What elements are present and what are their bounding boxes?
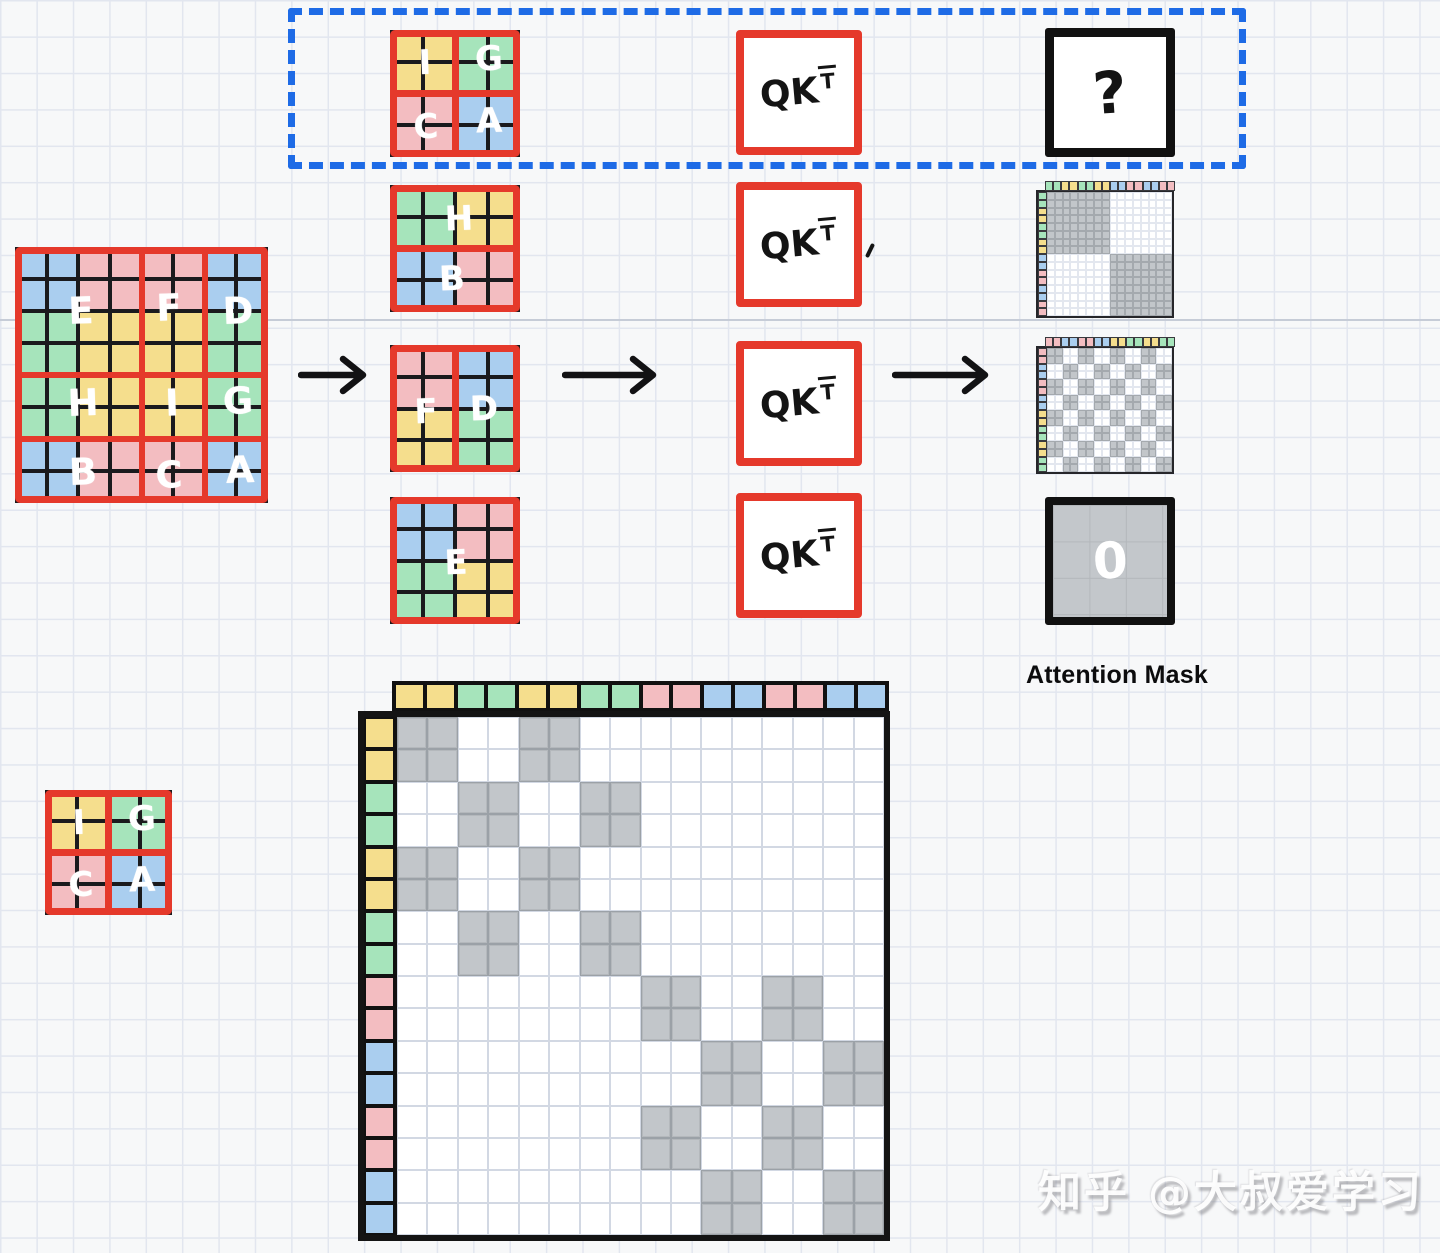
mask-cell bbox=[1086, 457, 1094, 465]
mask-cell bbox=[1078, 418, 1086, 426]
mask-cell bbox=[1141, 364, 1149, 372]
mask-query-strip bbox=[1038, 348, 1047, 472]
mask-cell bbox=[458, 749, 488, 781]
mask-cell bbox=[1047, 254, 1055, 262]
strip-cell bbox=[1038, 418, 1047, 426]
mask-cell bbox=[1149, 277, 1157, 285]
mask-cell bbox=[1164, 371, 1172, 379]
mask-cell bbox=[1141, 457, 1149, 465]
mask-cell bbox=[1156, 246, 1164, 254]
mask-cell bbox=[1063, 356, 1071, 364]
mask-cell bbox=[488, 1203, 518, 1235]
mask-cell bbox=[854, 1203, 884, 1235]
mask-cell bbox=[1110, 262, 1118, 270]
mask-cell bbox=[1094, 270, 1102, 278]
mask-cell bbox=[1063, 246, 1071, 254]
mask-cell bbox=[823, 1170, 853, 1202]
mask-cell bbox=[671, 944, 701, 976]
mask-cell bbox=[1063, 192, 1071, 200]
mask-cell bbox=[580, 976, 610, 1008]
mask-cell bbox=[458, 911, 488, 943]
mask-cell bbox=[762, 944, 792, 976]
mask-cell bbox=[1063, 239, 1071, 247]
mask-cell bbox=[1070, 379, 1078, 387]
mask-cell bbox=[1117, 277, 1125, 285]
mask-cell bbox=[1141, 192, 1149, 200]
mask-cell bbox=[793, 814, 823, 846]
mask-cell bbox=[1086, 418, 1094, 426]
mask-cell bbox=[1110, 449, 1118, 457]
mask-cell bbox=[1063, 402, 1071, 410]
mask-cell bbox=[1110, 371, 1118, 379]
mask-cell bbox=[1117, 308, 1125, 316]
mask-cell bbox=[1133, 308, 1141, 316]
mask-cell bbox=[1125, 364, 1133, 372]
mask-cell bbox=[641, 911, 671, 943]
mask-cell bbox=[1094, 348, 1102, 356]
mask-cell bbox=[1110, 239, 1118, 247]
mask-cell bbox=[1063, 308, 1071, 316]
mask-cell bbox=[1055, 387, 1063, 395]
mask-cell bbox=[1110, 410, 1118, 418]
mask-cell bbox=[1055, 464, 1063, 472]
mask-cell bbox=[1117, 364, 1125, 372]
mask-cell bbox=[1047, 356, 1055, 364]
arrow-right-icon bbox=[892, 352, 996, 398]
mask-cell bbox=[854, 911, 884, 943]
mask-cell bbox=[488, 911, 518, 943]
strip-cell bbox=[1053, 181, 1061, 191]
mask-cell bbox=[1086, 449, 1094, 457]
mask-cell bbox=[1141, 208, 1149, 216]
strip-cell bbox=[1038, 277, 1047, 285]
mask-cell bbox=[1156, 433, 1164, 441]
mask-cell bbox=[1117, 301, 1125, 309]
mask-cell bbox=[1063, 262, 1071, 270]
mask-cell bbox=[488, 1041, 518, 1073]
mask-cell bbox=[1110, 200, 1118, 208]
mask-cell bbox=[1141, 418, 1149, 426]
mask-cell bbox=[1149, 262, 1157, 270]
mask-cell bbox=[1047, 379, 1055, 387]
mask-cell bbox=[854, 1008, 884, 1040]
mask-cell bbox=[1133, 192, 1141, 200]
strip-cell bbox=[1167, 337, 1175, 347]
mask-cell bbox=[1055, 208, 1063, 216]
mask-cell bbox=[1078, 285, 1086, 293]
mask-cell bbox=[762, 749, 792, 781]
mask-cell bbox=[854, 1073, 884, 1105]
mask-cell bbox=[1086, 426, 1094, 434]
mask-cell bbox=[488, 749, 518, 781]
mask-cell bbox=[1133, 223, 1141, 231]
strip-cell bbox=[1038, 441, 1047, 449]
mask-cell bbox=[1102, 293, 1110, 301]
mask-cell bbox=[762, 1138, 792, 1170]
mask-cell bbox=[1117, 387, 1125, 395]
mask-cell bbox=[1063, 410, 1071, 418]
mask-cell bbox=[519, 1138, 549, 1170]
mask-cell bbox=[1125, 208, 1133, 216]
mask-cell bbox=[1047, 246, 1055, 254]
mask-key-strip bbox=[1045, 337, 1175, 347]
mask-cell bbox=[1047, 402, 1055, 410]
mask-cell bbox=[1094, 379, 1102, 387]
mask-cell bbox=[1164, 410, 1172, 418]
mask-cell bbox=[1094, 364, 1102, 372]
mask-cell bbox=[549, 879, 579, 911]
mask-cell bbox=[1110, 270, 1118, 278]
mask-cell bbox=[549, 911, 579, 943]
mask-cell bbox=[580, 847, 610, 879]
mask-cell bbox=[580, 1106, 610, 1138]
strip-cell bbox=[364, 1008, 395, 1040]
mask-cell bbox=[1125, 215, 1133, 223]
mask-cell bbox=[1149, 356, 1157, 364]
mask-cell bbox=[1156, 239, 1164, 247]
mask-cell bbox=[397, 1106, 427, 1138]
strip-cell bbox=[1110, 181, 1118, 191]
mask-cell bbox=[854, 782, 884, 814]
mask-cell bbox=[1094, 223, 1102, 231]
mask-cell bbox=[610, 1041, 640, 1073]
mask-cell bbox=[1070, 239, 1078, 247]
strip-cell bbox=[1038, 239, 1047, 247]
strip-cell bbox=[364, 976, 395, 1008]
strip-cell bbox=[1102, 337, 1110, 347]
mask-cell bbox=[671, 1008, 701, 1040]
mask-cell bbox=[1156, 418, 1164, 426]
mask-cell bbox=[1164, 239, 1172, 247]
mask-cell bbox=[1141, 426, 1149, 434]
mask-cell bbox=[1125, 277, 1133, 285]
mask-cell bbox=[1086, 231, 1094, 239]
mask-cell bbox=[1149, 270, 1157, 278]
mask-cell bbox=[1055, 364, 1063, 372]
strip-cell bbox=[364, 1203, 395, 1235]
mask-cell bbox=[458, 944, 488, 976]
mask-cell bbox=[1133, 277, 1141, 285]
mask-cell bbox=[671, 1073, 701, 1105]
decorative-element bbox=[895, 359, 985, 391]
mask-cell bbox=[1070, 371, 1078, 379]
mask-cell bbox=[1141, 464, 1149, 472]
mask-cell bbox=[1102, 223, 1110, 231]
mask-cell bbox=[1133, 379, 1141, 387]
mask-cell bbox=[1164, 464, 1172, 472]
mask-cell bbox=[1102, 200, 1110, 208]
mask-cell bbox=[458, 1138, 488, 1170]
mask-cell bbox=[1094, 356, 1102, 364]
mask-cell bbox=[1141, 246, 1149, 254]
mask-cell bbox=[1125, 246, 1133, 254]
window-e: E bbox=[390, 497, 520, 624]
mask-cell bbox=[1110, 426, 1118, 434]
window-letter: G bbox=[474, 42, 503, 77]
mask-cell bbox=[488, 1138, 518, 1170]
mask-cell bbox=[1078, 192, 1086, 200]
mask-cell bbox=[1078, 308, 1086, 316]
mask-cell bbox=[1070, 418, 1078, 426]
strip-cell bbox=[1038, 433, 1047, 441]
window-letter: H bbox=[444, 202, 474, 237]
mask-cell bbox=[458, 782, 488, 814]
mask-cell bbox=[671, 911, 701, 943]
window-letter: I bbox=[418, 46, 432, 80]
mask-cell bbox=[1149, 246, 1157, 254]
mask-cell bbox=[1149, 441, 1157, 449]
mask-cell bbox=[762, 1073, 792, 1105]
mask-cell bbox=[1094, 371, 1102, 379]
strip-cell bbox=[1038, 410, 1047, 418]
mask-cell bbox=[458, 717, 488, 749]
mask-cell bbox=[701, 1138, 731, 1170]
mask-cell bbox=[641, 814, 671, 846]
mask-cell bbox=[1141, 379, 1149, 387]
strip-cell bbox=[1038, 348, 1047, 356]
mask-cell bbox=[1110, 192, 1118, 200]
mask-cell bbox=[1055, 270, 1063, 278]
mask-cell bbox=[610, 911, 640, 943]
mask-cell bbox=[1086, 301, 1094, 309]
strip-cell bbox=[764, 683, 795, 710]
mask-cell bbox=[458, 976, 488, 1008]
strip-cell bbox=[1078, 337, 1086, 347]
mask-cell bbox=[580, 1041, 610, 1073]
mask-cell bbox=[1164, 402, 1172, 410]
mask-cell bbox=[1110, 441, 1118, 449]
mask-cell bbox=[854, 879, 884, 911]
mask-cell bbox=[488, 717, 518, 749]
mask-cell bbox=[762, 879, 792, 911]
mask-cell bbox=[1117, 239, 1125, 247]
mask-cell bbox=[1102, 457, 1110, 465]
mask-cell bbox=[1149, 410, 1157, 418]
mask-cell bbox=[580, 814, 610, 846]
mask-cell bbox=[762, 782, 792, 814]
mask-cell bbox=[1047, 239, 1055, 247]
mask-cell bbox=[1156, 301, 1164, 309]
mask-cell bbox=[1117, 379, 1125, 387]
mask-cell bbox=[823, 976, 853, 1008]
mask-cell bbox=[1094, 215, 1102, 223]
mask-cell bbox=[610, 1106, 640, 1138]
mask-cell bbox=[427, 1041, 457, 1073]
mask-cell bbox=[1086, 387, 1094, 395]
mask-cell bbox=[1164, 356, 1172, 364]
mask-cell bbox=[580, 1138, 610, 1170]
mask-cell bbox=[519, 1008, 549, 1040]
mask-cell bbox=[549, 717, 579, 749]
mask-cell bbox=[397, 976, 427, 1008]
mask-cell bbox=[519, 944, 549, 976]
qkt-box-3: QKT bbox=[736, 341, 862, 466]
mask-cell bbox=[762, 847, 792, 879]
mask-cell bbox=[641, 782, 671, 814]
mask-cell bbox=[549, 1073, 579, 1105]
mask-cell bbox=[1047, 208, 1055, 216]
strip-cell bbox=[671, 683, 702, 710]
strip-cell bbox=[1038, 379, 1047, 387]
mask-cell bbox=[1078, 433, 1086, 441]
mask-cell bbox=[397, 1203, 427, 1235]
mask-cell bbox=[1156, 308, 1164, 316]
mask-cell bbox=[1125, 356, 1133, 364]
strip-cell bbox=[702, 683, 733, 710]
mask-cell bbox=[671, 814, 701, 846]
mask-cell bbox=[641, 879, 671, 911]
mask-cell bbox=[1094, 192, 1102, 200]
mask-cell bbox=[458, 1008, 488, 1040]
mask-cell bbox=[519, 1073, 549, 1105]
mask-cell bbox=[1117, 254, 1125, 262]
mask-cell bbox=[1117, 441, 1125, 449]
mask-cell bbox=[519, 1106, 549, 1138]
mask-cell bbox=[1164, 441, 1172, 449]
mask-cell bbox=[1047, 371, 1055, 379]
mask-cell bbox=[1086, 410, 1094, 418]
mask-cell bbox=[1149, 449, 1157, 457]
mask-cell bbox=[1133, 464, 1141, 472]
mask-cell bbox=[762, 814, 792, 846]
mask-cell bbox=[1117, 348, 1125, 356]
mask-cell bbox=[1078, 356, 1086, 364]
mask-cell bbox=[1149, 208, 1157, 216]
mask-cell bbox=[1164, 262, 1172, 270]
mask-cell bbox=[1141, 285, 1149, 293]
mask-cell bbox=[580, 1008, 610, 1040]
mask-cell bbox=[1102, 433, 1110, 441]
mask-cell bbox=[1164, 215, 1172, 223]
mask-cell bbox=[519, 1203, 549, 1235]
mask-cell bbox=[701, 717, 731, 749]
strip-cell bbox=[1038, 356, 1047, 364]
mask-cell bbox=[1078, 449, 1086, 457]
mask-cell bbox=[1078, 464, 1086, 472]
mask-cell bbox=[1102, 208, 1110, 216]
mask-cell bbox=[1125, 410, 1133, 418]
mask-cell bbox=[671, 749, 701, 781]
mask-cell bbox=[1055, 215, 1063, 223]
mask-cell bbox=[1164, 426, 1172, 434]
mask-cell bbox=[458, 847, 488, 879]
window-fd: FD bbox=[390, 345, 520, 472]
mask-cell bbox=[701, 847, 731, 879]
window-letter: D bbox=[469, 391, 498, 426]
mask-cell bbox=[1102, 426, 1110, 434]
mask-cell bbox=[1102, 441, 1110, 449]
mask-cell bbox=[1156, 348, 1164, 356]
mask-cell bbox=[1047, 231, 1055, 239]
mask-cell bbox=[1078, 270, 1086, 278]
strip-cell bbox=[1038, 464, 1047, 472]
mask-cell bbox=[580, 1170, 610, 1202]
strip-cell bbox=[856, 683, 887, 710]
mask-cell bbox=[519, 976, 549, 1008]
mask-cell bbox=[671, 879, 701, 911]
question-mark: ? bbox=[1091, 57, 1129, 127]
mask-cell bbox=[641, 944, 671, 976]
mask-cell bbox=[1125, 379, 1133, 387]
mask-cell bbox=[1094, 402, 1102, 410]
mask-cell bbox=[1141, 387, 1149, 395]
mask-cell bbox=[671, 717, 701, 749]
mask-cell bbox=[1070, 223, 1078, 231]
mask-cell bbox=[1094, 208, 1102, 216]
mask-cell bbox=[1063, 277, 1071, 285]
mask-cell bbox=[488, 1073, 518, 1105]
strip-cell bbox=[1038, 200, 1047, 208]
mask-cell bbox=[1164, 208, 1172, 216]
mask-cell bbox=[1094, 301, 1102, 309]
graph-paper-canvas: EFDHIGBCA IGCA HB FD E IGCA QKT QKT QKT … bbox=[0, 0, 1440, 1253]
mask-cell bbox=[488, 1008, 518, 1040]
mask-cell bbox=[1149, 215, 1157, 223]
mask-cell bbox=[549, 976, 579, 1008]
mask-cell bbox=[1141, 293, 1149, 301]
mask-cell bbox=[1156, 371, 1164, 379]
strip-cell bbox=[610, 683, 641, 710]
mask-cell bbox=[1133, 449, 1141, 457]
mask-cell bbox=[580, 944, 610, 976]
region-letter: H bbox=[67, 384, 99, 422]
mask-cell bbox=[1063, 449, 1071, 457]
mask-cell bbox=[488, 1106, 518, 1138]
mask-cell bbox=[793, 976, 823, 1008]
mask-cell bbox=[793, 782, 823, 814]
mask-cell bbox=[762, 1170, 792, 1202]
mask-cell bbox=[1110, 285, 1118, 293]
mask-cell bbox=[427, 1008, 457, 1040]
mask-cell bbox=[397, 782, 427, 814]
mask-cell bbox=[732, 1008, 762, 1040]
mask-cell bbox=[1141, 410, 1149, 418]
mask-cell bbox=[1117, 262, 1125, 270]
mask-cell bbox=[1063, 464, 1071, 472]
mask-cell bbox=[854, 1170, 884, 1202]
strip-cell bbox=[1102, 181, 1110, 191]
strip-cell bbox=[1069, 181, 1077, 191]
mask-grid bbox=[1047, 348, 1172, 472]
decorative-element bbox=[565, 359, 653, 391]
mask-cell bbox=[641, 1138, 671, 1170]
mask-cell bbox=[793, 847, 823, 879]
mask-cell bbox=[397, 879, 427, 911]
mask-cell bbox=[1133, 410, 1141, 418]
mask-cell bbox=[1070, 449, 1078, 457]
mask-cell bbox=[1086, 246, 1094, 254]
strip-cell bbox=[1038, 364, 1047, 372]
mask-cell bbox=[1156, 215, 1164, 223]
mask-cell bbox=[1094, 285, 1102, 293]
strip-cell bbox=[1167, 181, 1175, 191]
qkt-label: QKT bbox=[758, 380, 839, 428]
mask-cell bbox=[549, 782, 579, 814]
strip-cell bbox=[1078, 181, 1086, 191]
mask-cell bbox=[1156, 402, 1164, 410]
mask-cell bbox=[1094, 433, 1102, 441]
strip-cell bbox=[1126, 337, 1134, 347]
mask-cell bbox=[1133, 395, 1141, 403]
mask-cell bbox=[1055, 301, 1063, 309]
mask-cell bbox=[1063, 208, 1071, 216]
mask-cell bbox=[671, 1138, 701, 1170]
mask-cell bbox=[1078, 426, 1086, 434]
mask-fd bbox=[1036, 337, 1176, 476]
mask-cell bbox=[1070, 192, 1078, 200]
strip-cell bbox=[1038, 192, 1047, 200]
strip-cell bbox=[1134, 181, 1142, 191]
